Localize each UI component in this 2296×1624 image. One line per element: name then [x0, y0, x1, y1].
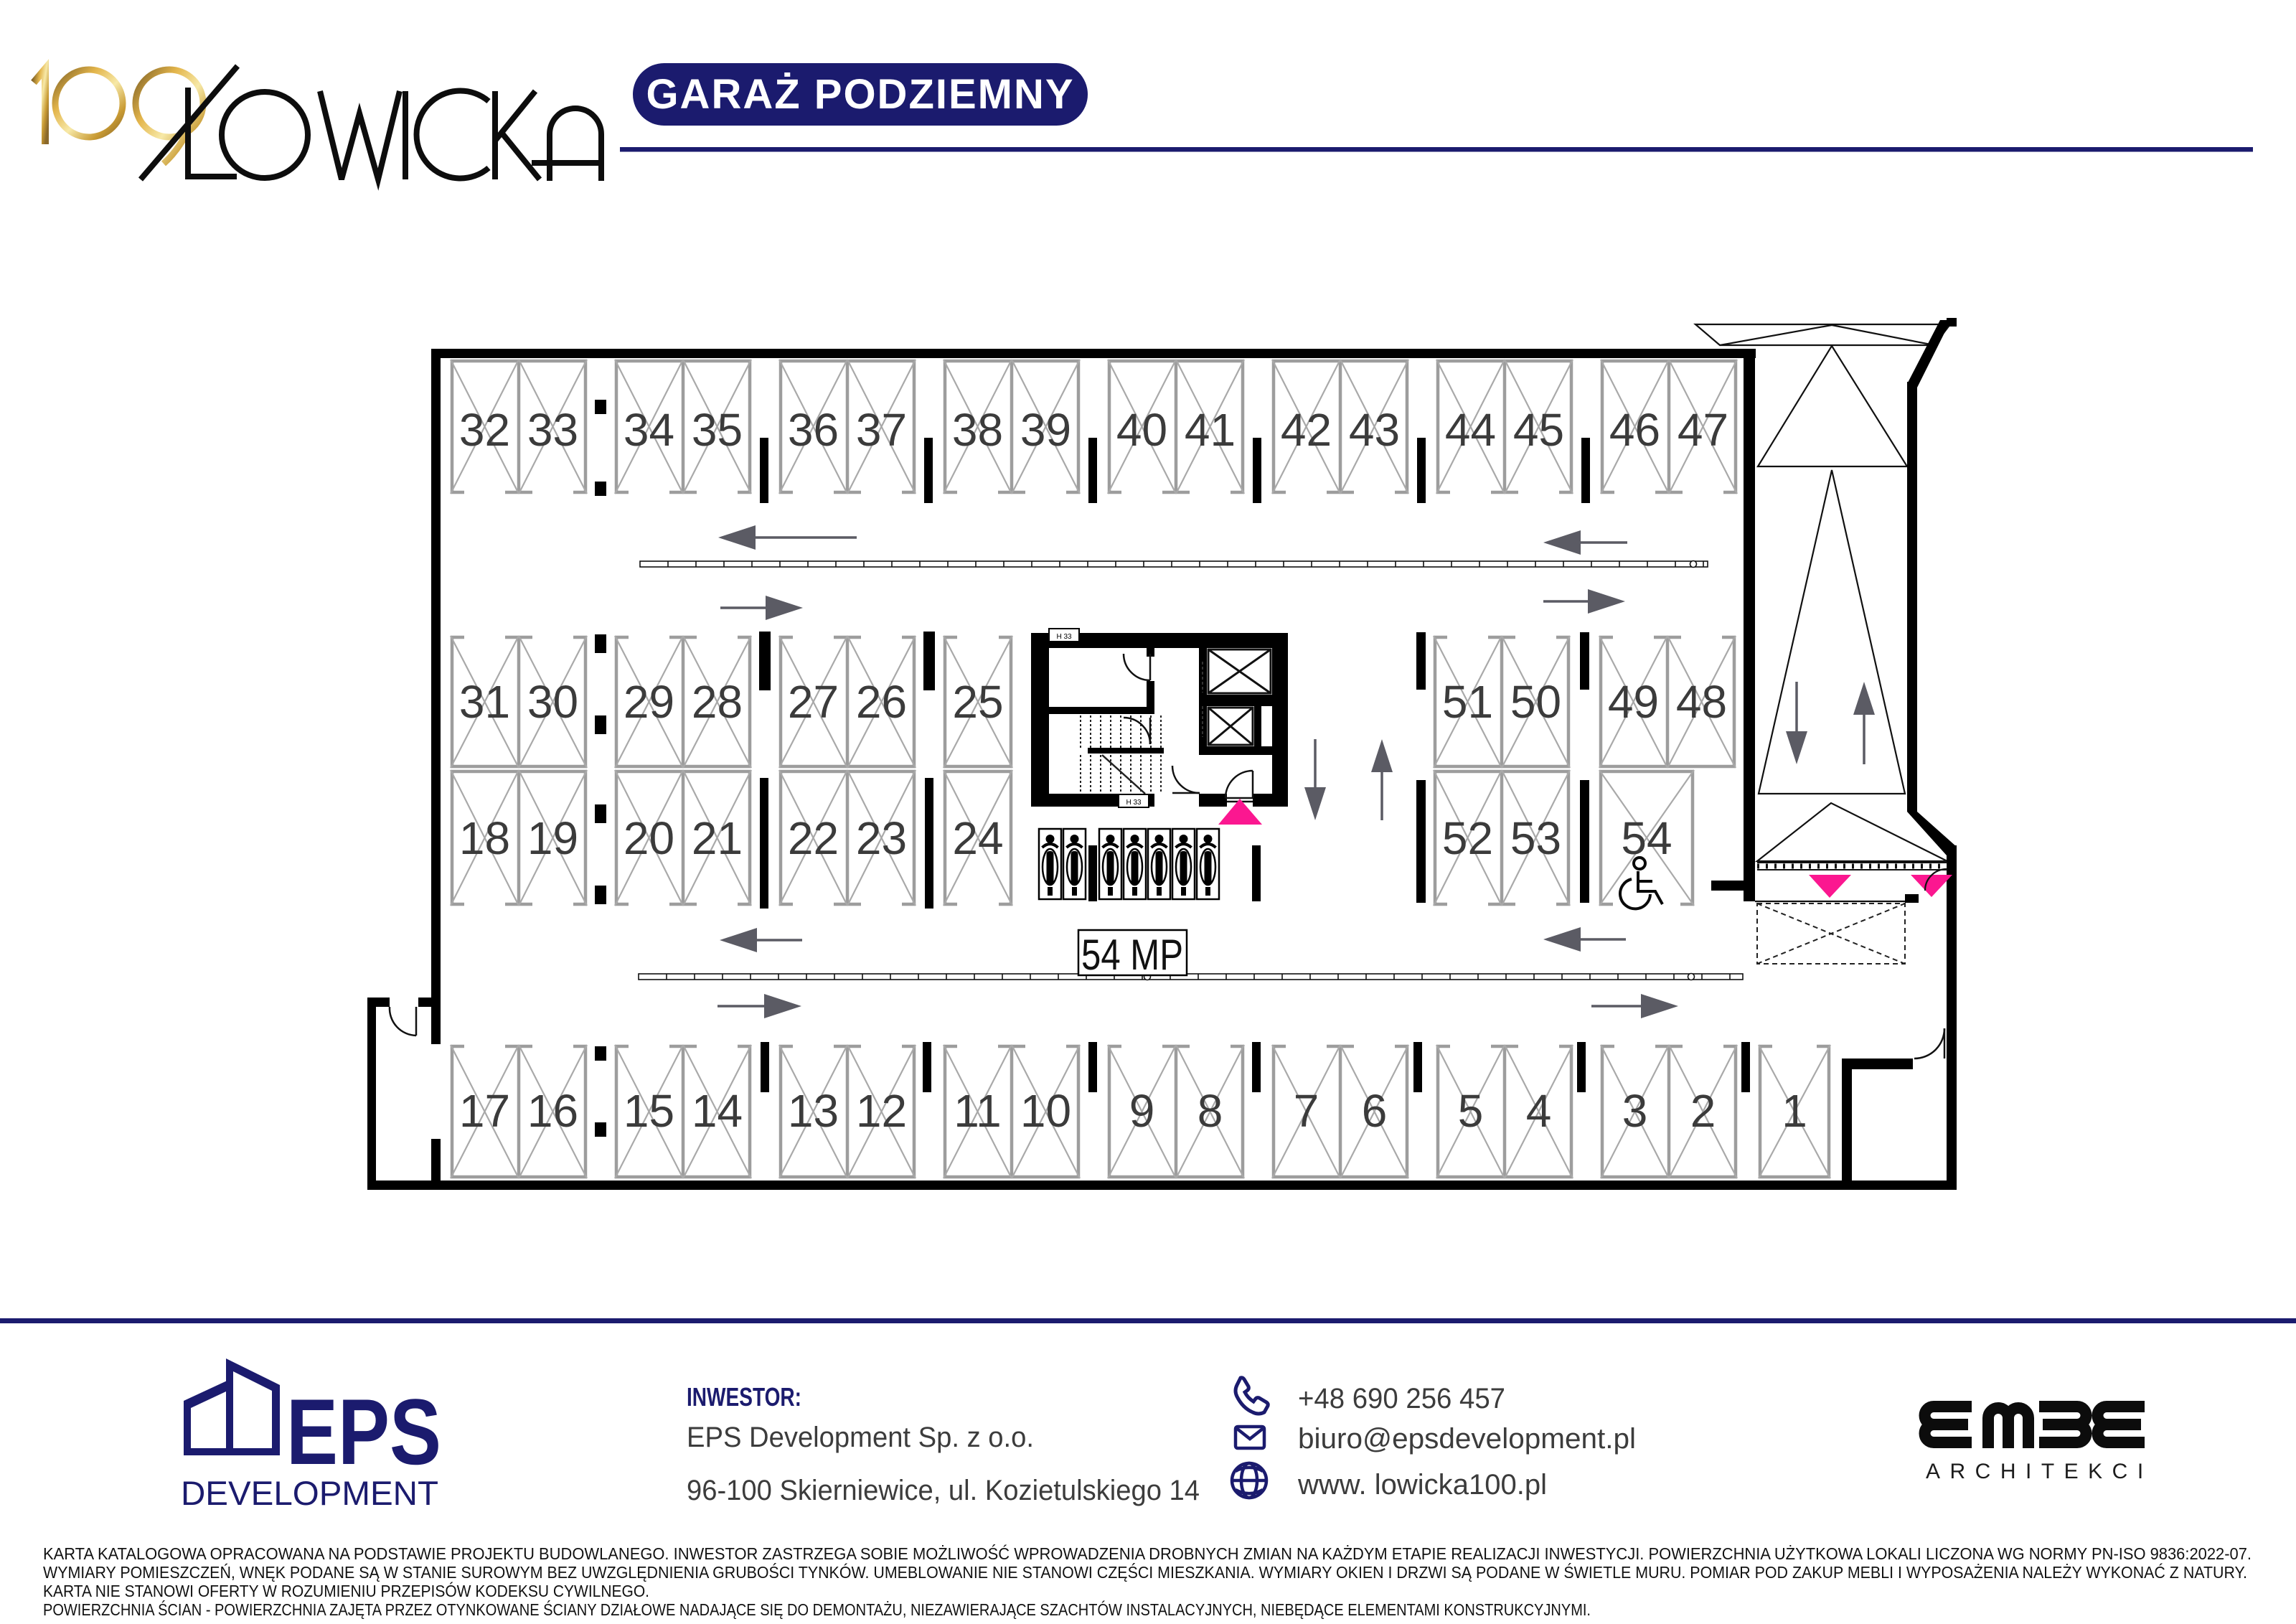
svg-text:23: 23 [856, 812, 907, 864]
svg-text:54: 54 [1621, 812, 1672, 864]
svg-text:96-100 Skierniewice, ul. Kozie: 96-100 Skierniewice, ul. Kozietulskiego … [687, 1475, 1200, 1506]
svg-text:16: 16 [527, 1085, 578, 1137]
svg-text:44: 44 [1445, 404, 1496, 456]
svg-text:12: 12 [856, 1085, 907, 1137]
svg-text:51: 51 [1442, 676, 1493, 728]
svg-text:33: 33 [527, 404, 578, 456]
svg-text:38: 38 [952, 404, 1003, 456]
svg-text:biuro@epsdevelopment.pl: biuro@epsdevelopment.pl [1298, 1423, 1636, 1455]
svg-text:37: 37 [856, 404, 907, 456]
svg-text:7: 7 [1294, 1085, 1319, 1137]
svg-text:GARAŻ PODZIEMNY: GARAŻ PODZIEMNY [646, 71, 1074, 118]
svg-text:5: 5 [1458, 1085, 1484, 1137]
svg-text:28: 28 [692, 676, 743, 728]
svg-text:39: 39 [1020, 404, 1071, 456]
svg-text:19: 19 [527, 812, 578, 864]
svg-text:31: 31 [459, 676, 510, 728]
svg-text:50: 50 [1510, 676, 1561, 728]
svg-text:4: 4 [1526, 1085, 1552, 1137]
svg-text:1: 1 [1782, 1085, 1807, 1137]
svg-text:INWESTOR:: INWESTOR: [687, 1382, 801, 1412]
svg-text:30: 30 [527, 676, 578, 728]
svg-text:45: 45 [1513, 404, 1564, 456]
svg-text:ARCHITEKCI: ARCHITEKCI [1926, 1460, 2153, 1483]
svg-text:54 MP: 54 MP [1081, 931, 1183, 979]
svg-text:H 33: H 33 [1126, 799, 1142, 807]
svg-text:POWIERZCHNIA ŚCIAN - POWIERZCH: POWIERZCHNIA ŚCIAN - POWIERZCHNIA ZAJĘTA… [43, 1600, 1591, 1619]
svg-text:40: 40 [1116, 404, 1167, 456]
svg-text:35: 35 [692, 404, 743, 456]
svg-text:29: 29 [624, 676, 674, 728]
svg-text:32: 32 [459, 404, 510, 456]
svg-text:18: 18 [459, 812, 510, 864]
svg-text:25: 25 [952, 676, 1003, 728]
svg-text:53: 53 [1510, 812, 1561, 864]
svg-text:17: 17 [459, 1085, 510, 1137]
svg-text:DEVELOPMENT: DEVELOPMENT [181, 1474, 438, 1512]
svg-text:H 33: H 33 [1056, 633, 1072, 641]
svg-text:9: 9 [1129, 1085, 1155, 1137]
svg-text:3: 3 [1622, 1085, 1648, 1137]
svg-text:41: 41 [1185, 404, 1236, 456]
svg-text:48: 48 [1676, 676, 1727, 728]
svg-text:49: 49 [1608, 676, 1659, 728]
svg-text:24: 24 [952, 812, 1003, 864]
svg-text:8: 8 [1198, 1085, 1223, 1137]
svg-text:13: 13 [788, 1085, 839, 1137]
svg-text:21: 21 [692, 812, 743, 864]
svg-text:11: 11 [954, 1085, 1001, 1137]
svg-text:46: 46 [1609, 404, 1660, 456]
svg-text:2: 2 [1690, 1085, 1716, 1137]
svg-text:52: 52 [1442, 812, 1493, 864]
svg-text:34: 34 [624, 404, 674, 456]
svg-text:www. lowicka100.pl: www. lowicka100.pl [1297, 1469, 1547, 1501]
svg-text:KARTA NIE STANOWI OFERTY W ROZ: KARTA NIE STANOWI OFERTY W ROZUMIENIU PR… [43, 1582, 649, 1600]
svg-text:EPS Development Sp. z o.o.: EPS Development Sp. z o.o. [687, 1422, 1034, 1453]
svg-text:43: 43 [1349, 404, 1400, 456]
svg-text:26: 26 [856, 676, 907, 728]
svg-text:10: 10 [1020, 1085, 1071, 1137]
svg-text:+48 690 256 457: +48 690 256 457 [1298, 1383, 1505, 1414]
svg-text:22: 22 [788, 812, 839, 864]
svg-text:20: 20 [624, 812, 674, 864]
svg-text:14: 14 [692, 1085, 743, 1137]
svg-text:27: 27 [788, 676, 839, 728]
svg-text:47: 47 [1678, 404, 1728, 456]
svg-text:6: 6 [1362, 1085, 1388, 1137]
svg-text:15: 15 [624, 1085, 674, 1137]
svg-text:42: 42 [1281, 404, 1332, 456]
svg-text:EPS: EPS [286, 1379, 441, 1484]
svg-text:WYMIARY POMIESZCZEŃ, WNĘK PODA: WYMIARY POMIESZCZEŃ, WNĘK PODANE SĄ W ST… [43, 1562, 2247, 1582]
svg-text:36: 36 [788, 404, 839, 456]
svg-text:KARTA KATALOGOWA OPRACOWANA NA: KARTA KATALOGOWA OPRACOWANA NA PODSTAWIE… [43, 1544, 2252, 1563]
